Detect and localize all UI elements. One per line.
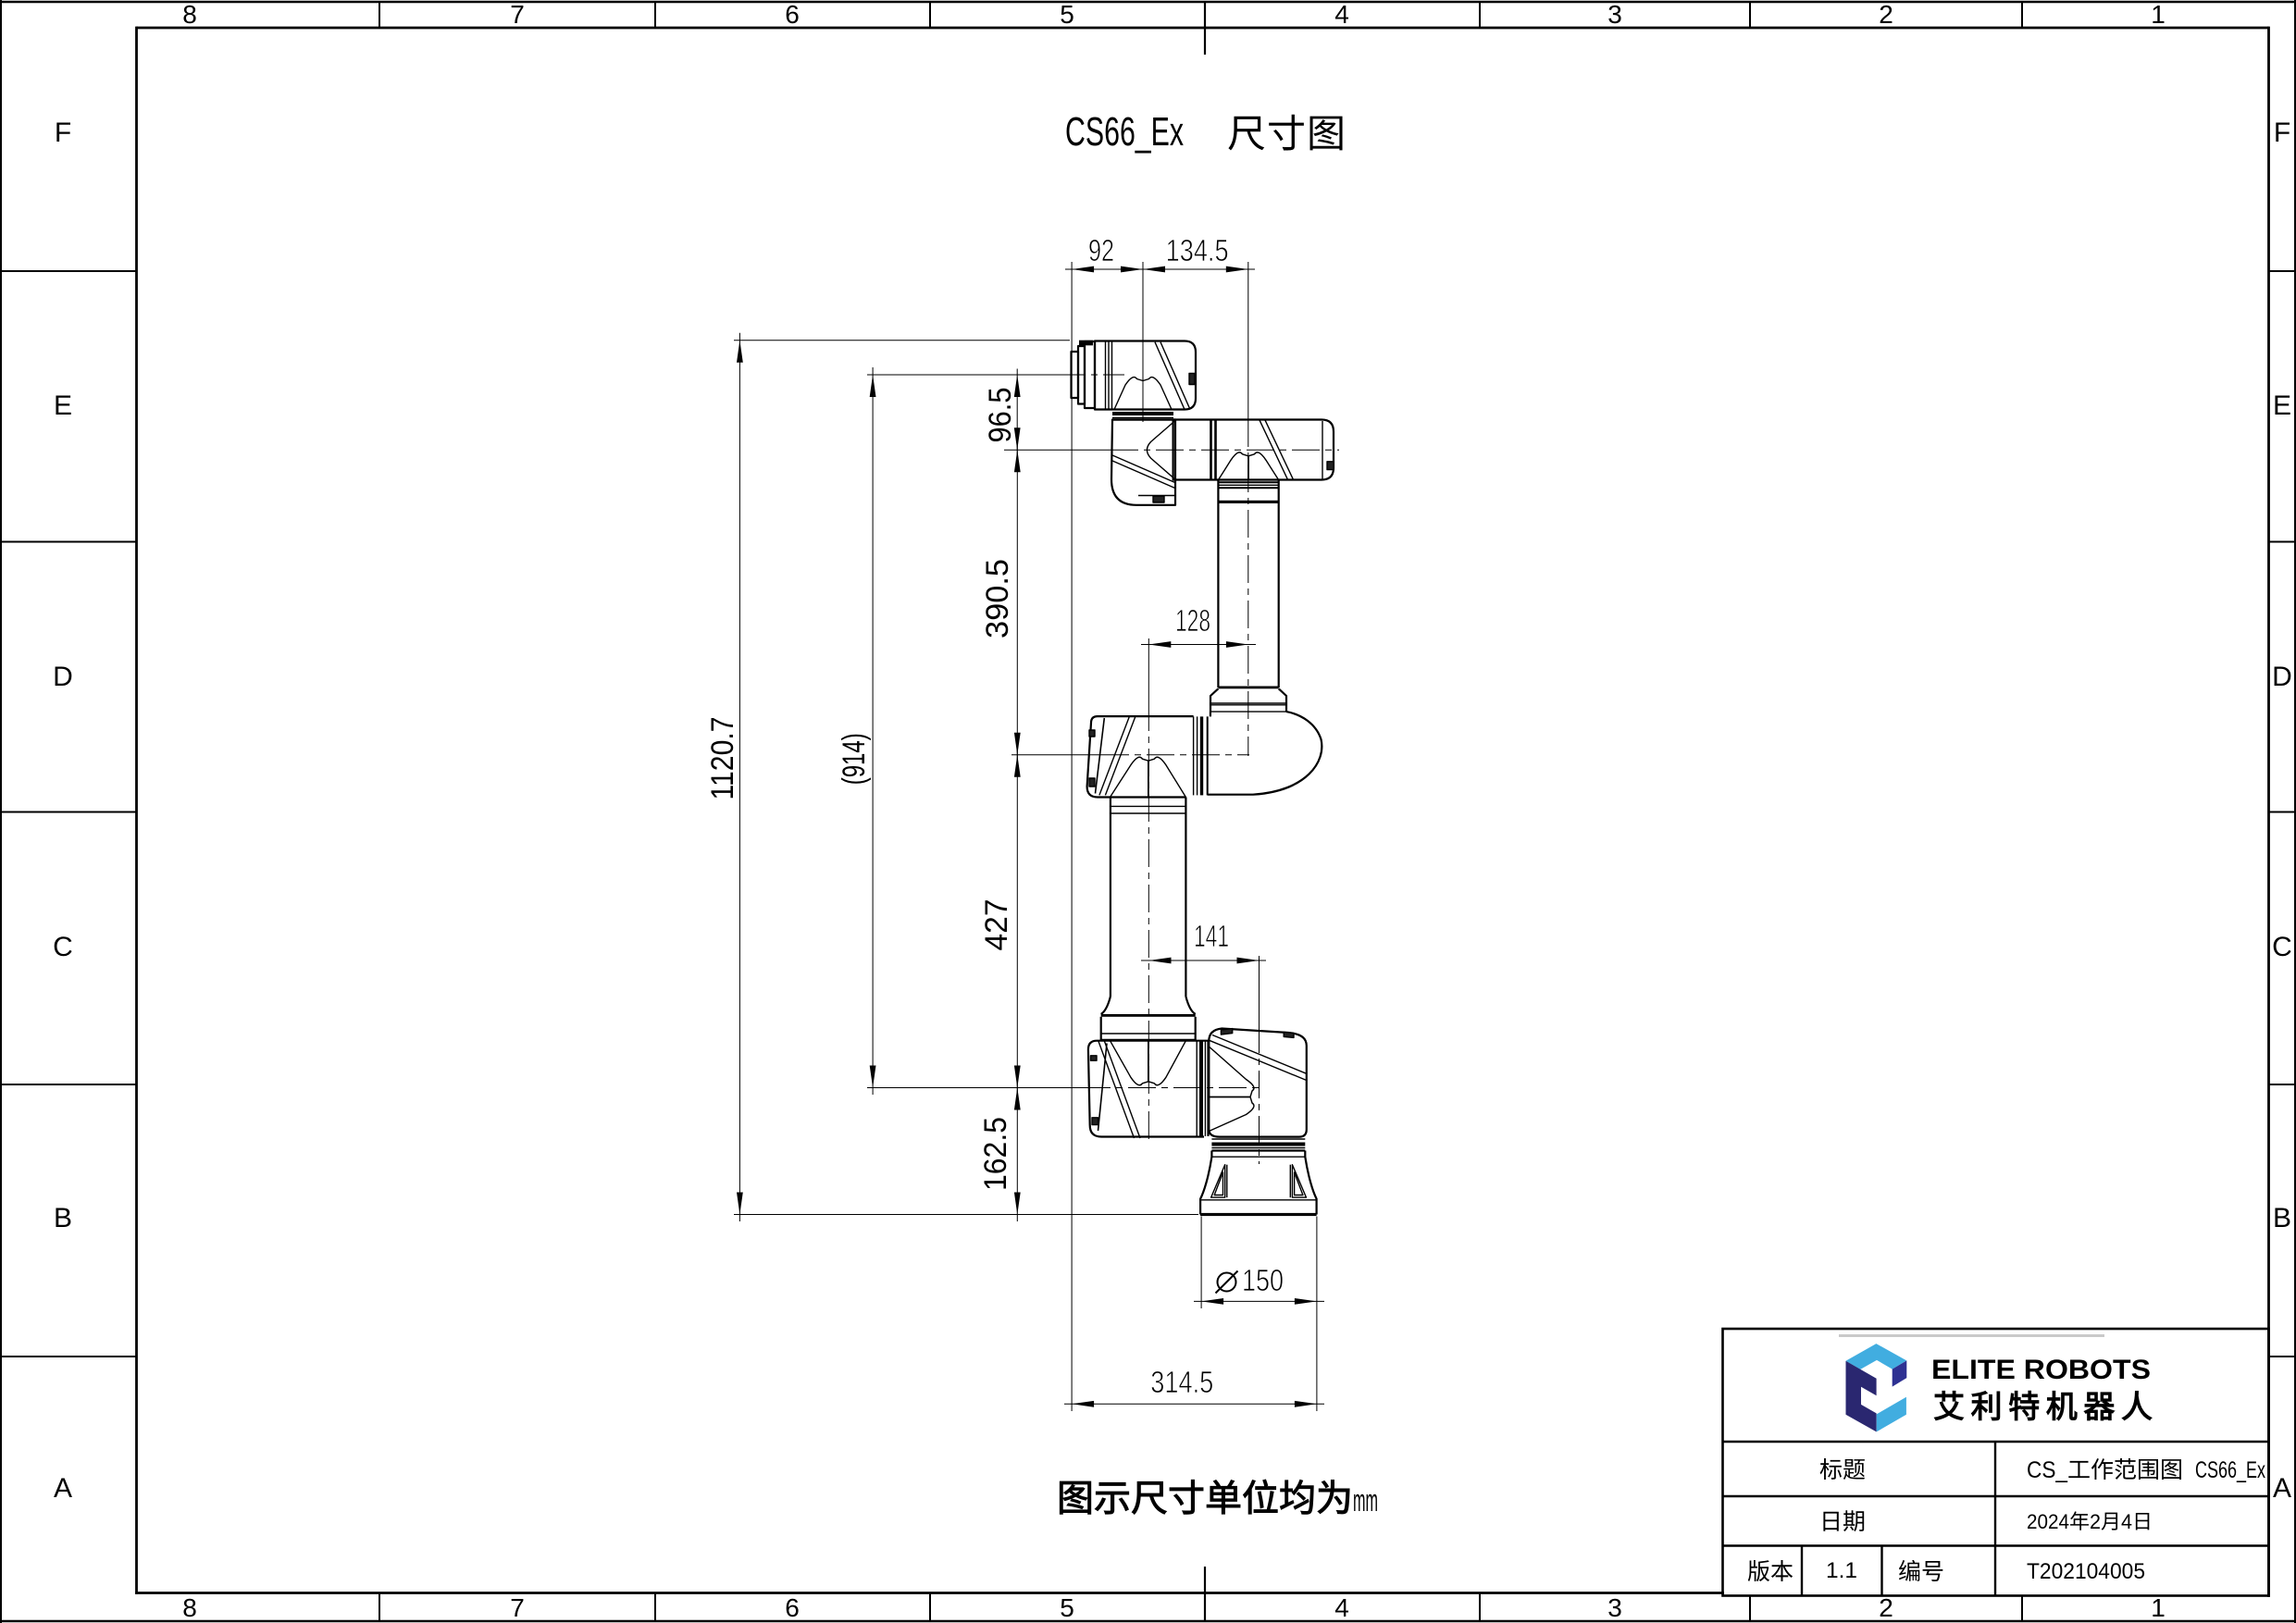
svg-text:C: C [2272, 932, 2292, 962]
svg-text:F: F [55, 118, 71, 148]
svg-text:mm: mm [1353, 1483, 1378, 1518]
svg-text:E: E [54, 390, 72, 421]
svg-text:162.5: 162.5 [978, 1117, 1013, 1191]
svg-text:1.1: 1.1 [1826, 1558, 1857, 1583]
svg-text:D: D [2272, 662, 2292, 692]
svg-text:5: 5 [1060, 0, 1074, 29]
svg-text:128: 128 [1175, 603, 1210, 638]
svg-text:141: 141 [1194, 919, 1229, 953]
svg-text:(914): (914) [837, 733, 872, 785]
svg-text:3: 3 [1607, 1593, 1622, 1622]
svg-text:T202104005: T202104005 [2027, 1559, 2145, 1584]
svg-text:7: 7 [510, 0, 525, 29]
svg-text:314.5: 314.5 [1150, 1365, 1213, 1399]
svg-text:6: 6 [785, 0, 800, 29]
svg-text:2: 2 [2090, 1510, 2101, 1533]
svg-text:6: 6 [785, 1593, 800, 1622]
svg-text:7: 7 [510, 1593, 525, 1622]
svg-text:5: 5 [1060, 1593, 1074, 1622]
svg-text:96.5: 96.5 [983, 388, 1018, 443]
svg-text:A: A [2273, 1473, 2291, 1504]
svg-text:C: C [53, 932, 73, 962]
svg-text:CS_: CS_ [2027, 1457, 2068, 1483]
svg-text:B: B [54, 1203, 72, 1233]
svg-text:2024: 2024 [2027, 1510, 2069, 1533]
svg-text:A: A [54, 1473, 72, 1504]
svg-text:92: 92 [1088, 233, 1114, 267]
svg-text:2: 2 [1879, 1593, 1893, 1622]
svg-text:F: F [2274, 118, 2290, 148]
svg-text:4: 4 [1334, 1593, 1349, 1622]
svg-text:427: 427 [979, 899, 1014, 951]
svg-text:150: 150 [1242, 1263, 1284, 1297]
svg-text:4: 4 [2121, 1510, 2132, 1533]
svg-text:3: 3 [1607, 0, 1622, 29]
svg-text:8: 8 [182, 1593, 197, 1622]
svg-text:D: D [53, 662, 73, 692]
svg-text:8: 8 [182, 0, 197, 29]
svg-text:CS66_Ex: CS66_Ex [1065, 109, 1184, 155]
svg-text:CS66_Ex: CS66_Ex [2195, 1457, 2265, 1483]
svg-text:4: 4 [1334, 0, 1349, 29]
svg-text:ELITE ROBOTS: ELITE ROBOTS [1931, 1355, 2151, 1385]
svg-text:390.5: 390.5 [980, 559, 1015, 638]
svg-text:1: 1 [2151, 1593, 2166, 1622]
svg-text:E: E [2273, 390, 2291, 421]
svg-text:2: 2 [1879, 0, 1893, 29]
svg-text:1120.7: 1120.7 [705, 717, 740, 800]
svg-text:1: 1 [2151, 0, 2166, 29]
svg-text:134.5: 134.5 [1166, 233, 1229, 267]
svg-text:B: B [2273, 1203, 2291, 1233]
